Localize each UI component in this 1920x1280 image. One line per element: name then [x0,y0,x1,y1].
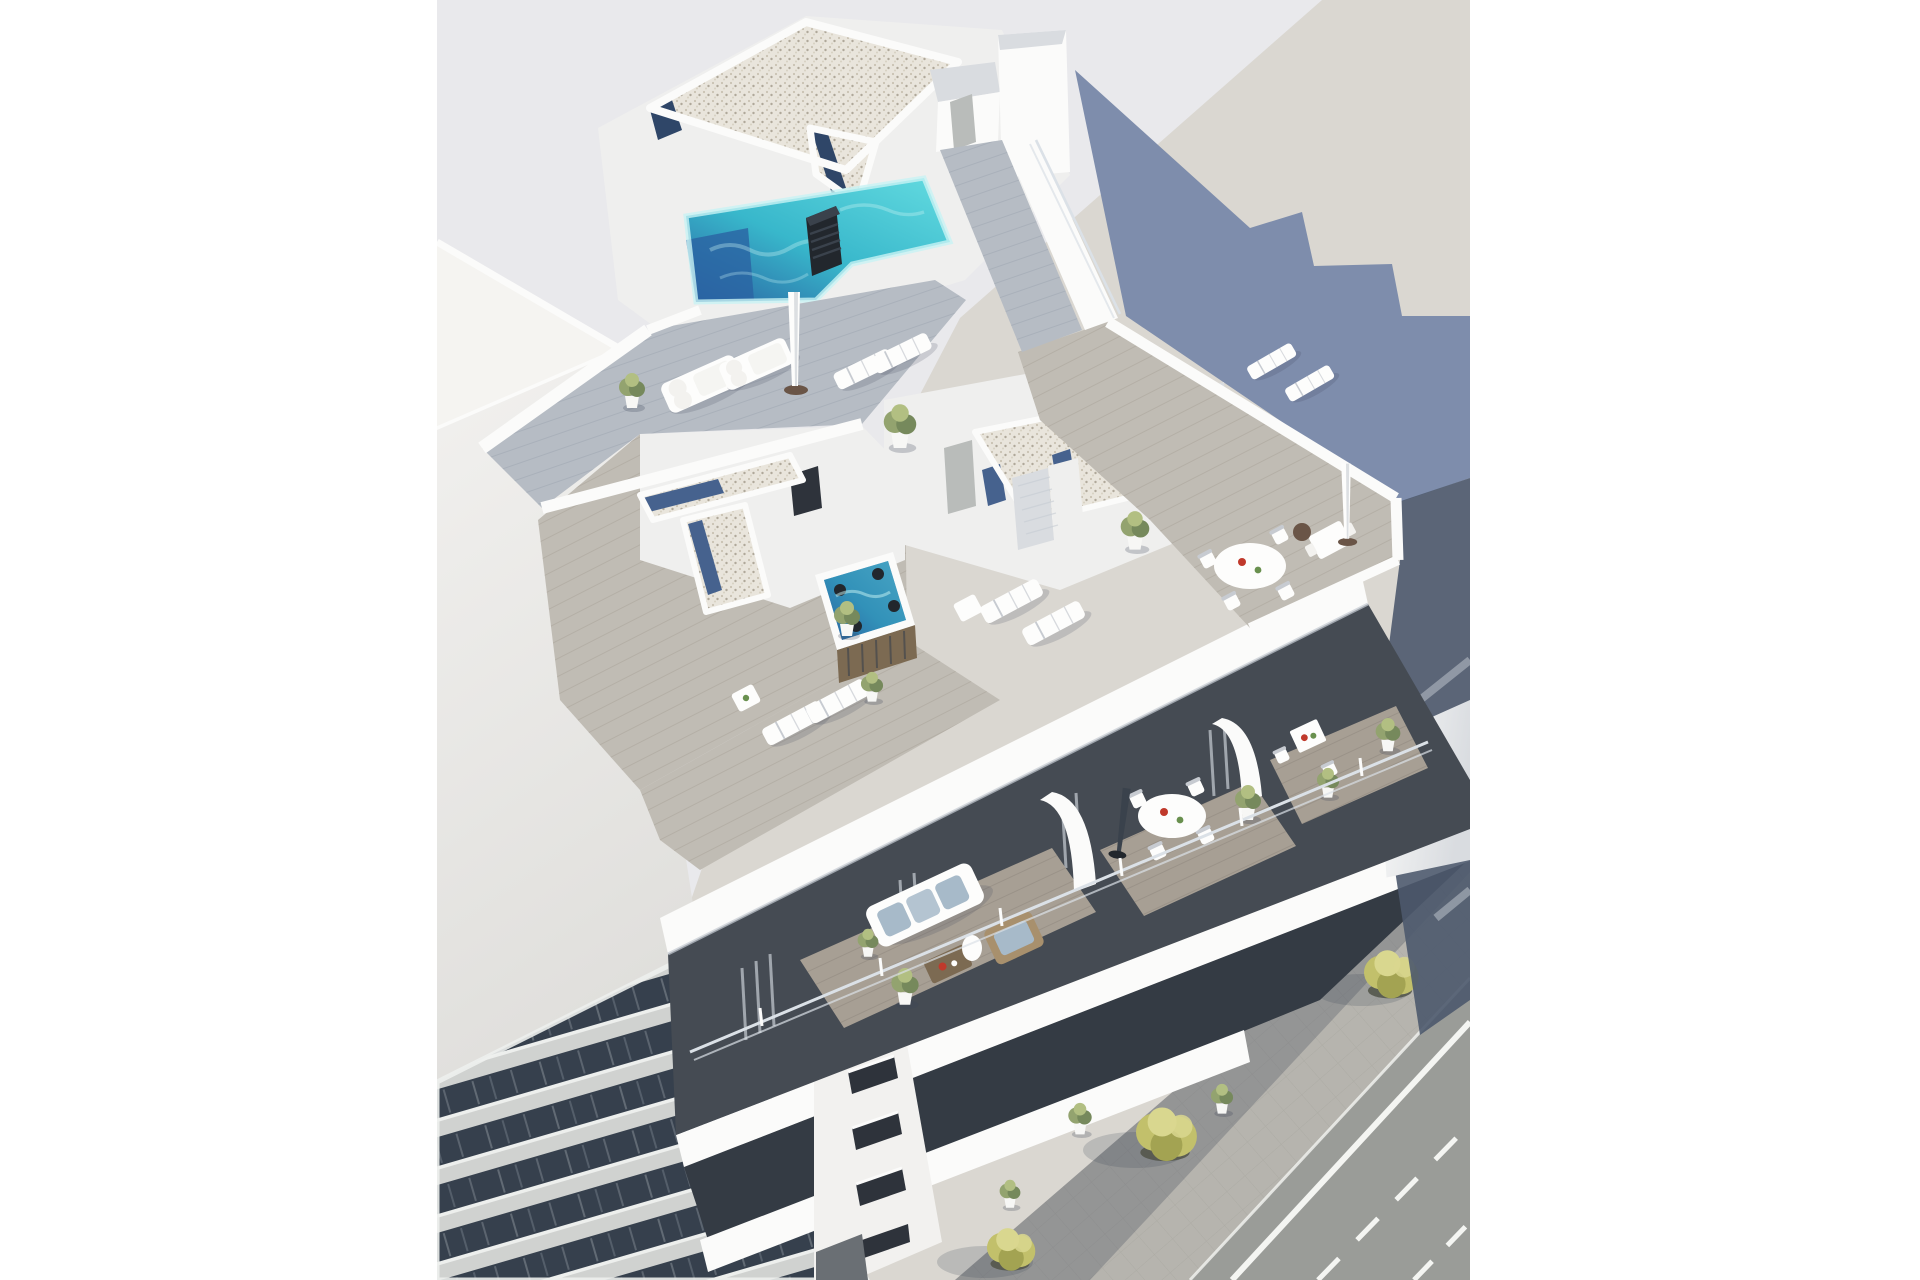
render-scene [437,0,1470,1280]
architectural-render [0,0,1920,1280]
render-page [0,0,1920,1280]
bulkhead-door [950,94,976,150]
roof-door [944,440,976,514]
chimney [806,206,842,276]
